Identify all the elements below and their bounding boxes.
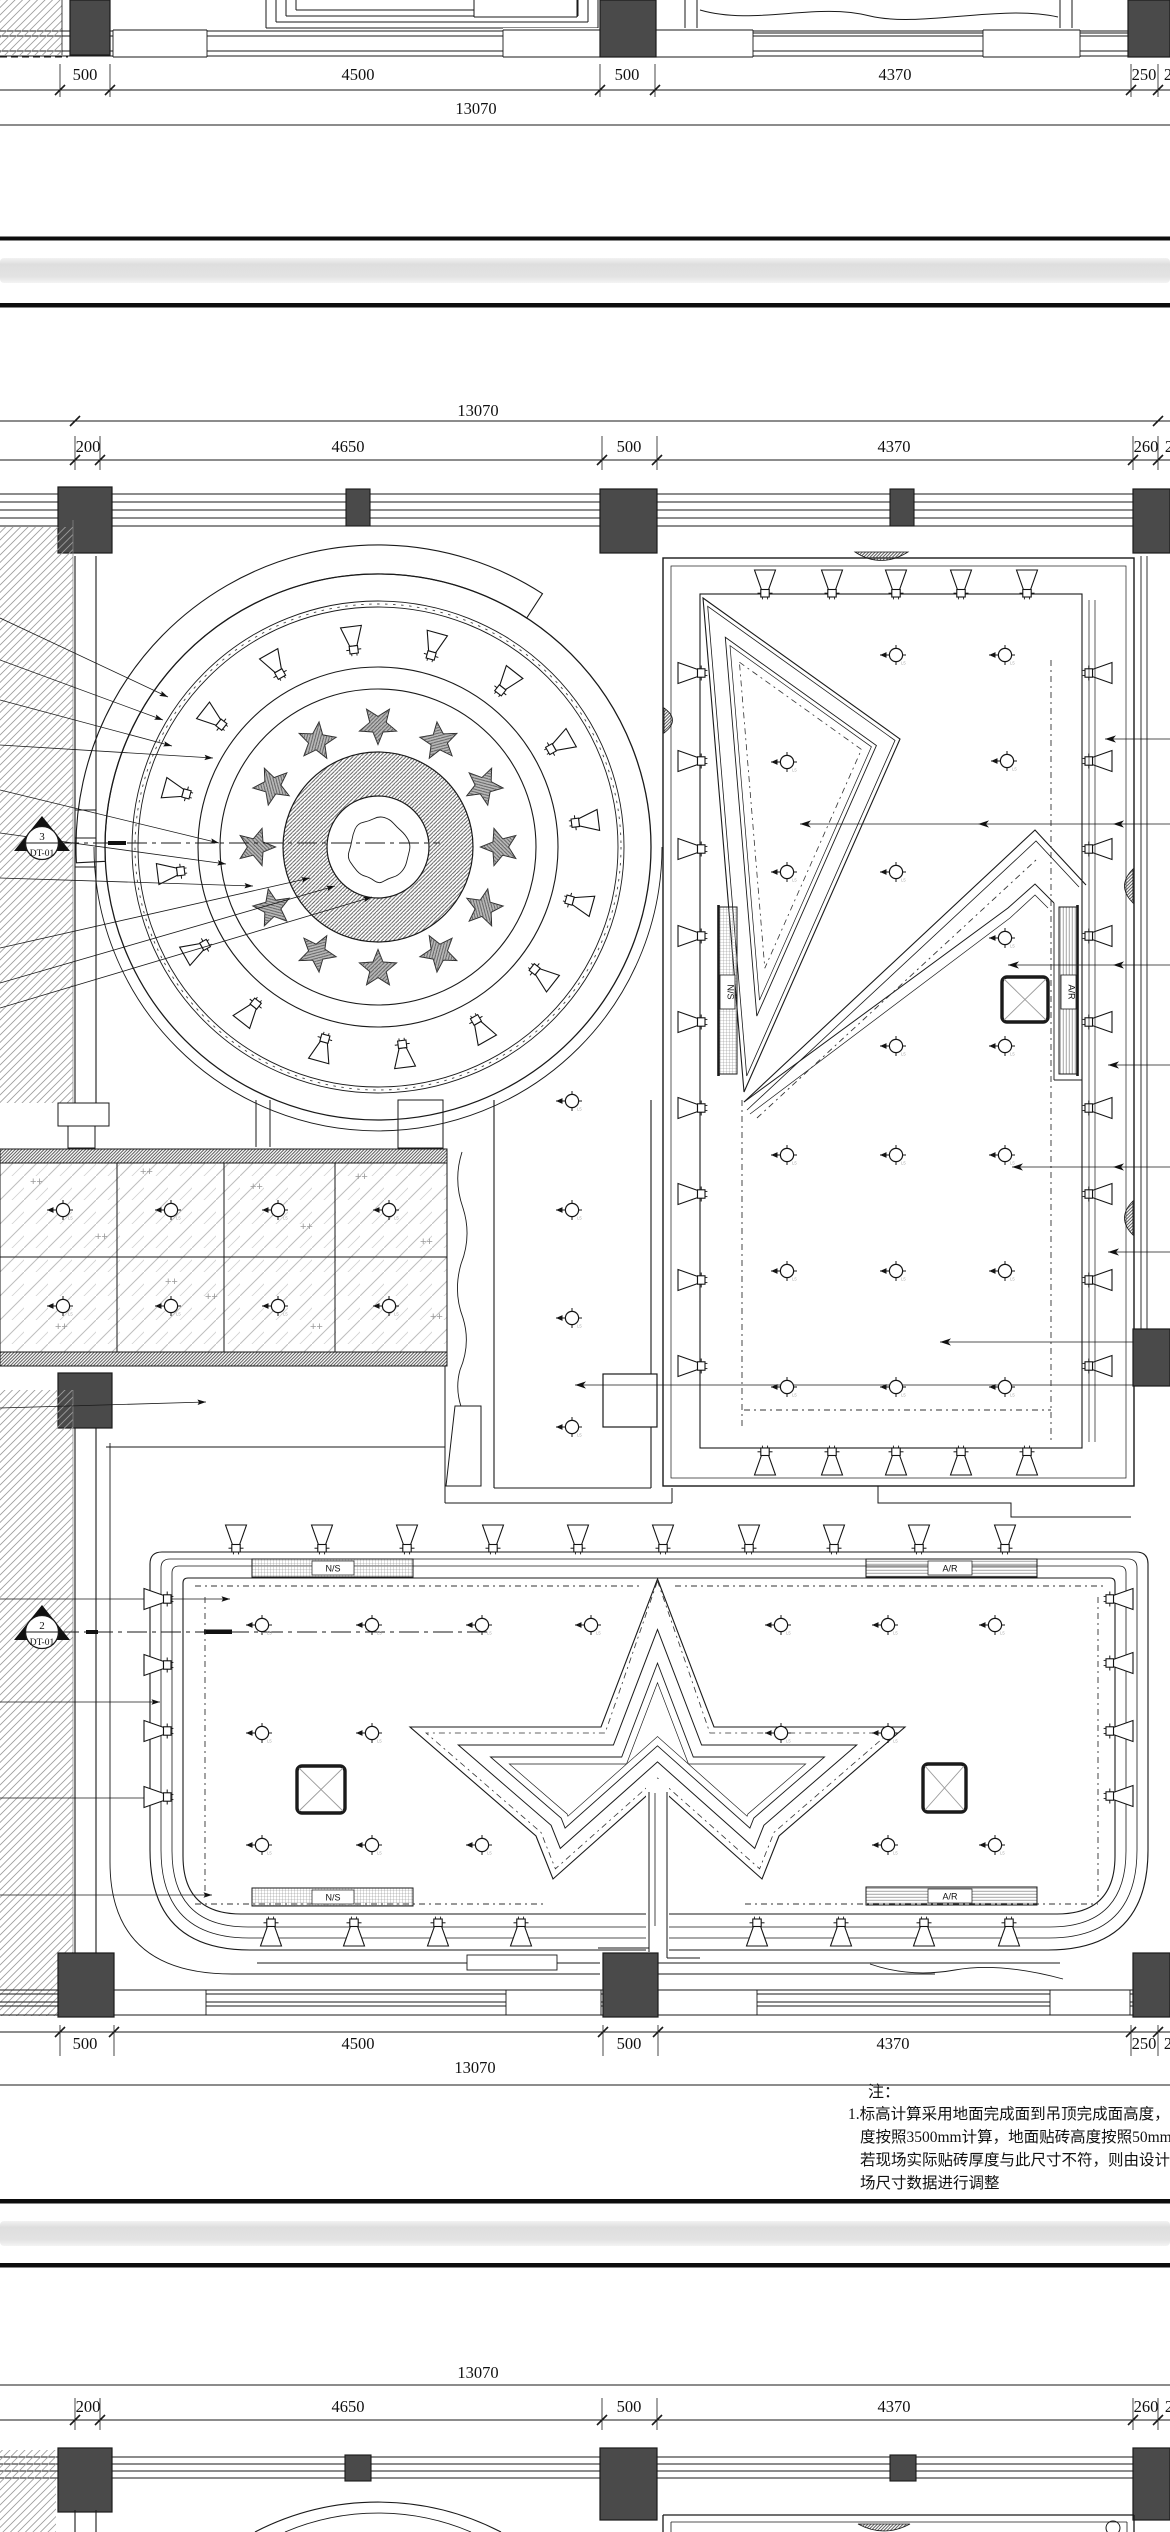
svg-text:250: 250 (1132, 2034, 1157, 2053)
svg-text:13070: 13070 (457, 401, 498, 420)
svg-text:++: ++ (205, 1291, 218, 1303)
svg-text:260: 260 (1134, 437, 1159, 456)
svg-text:若现场实际贴砖厚度与此尺寸不符，则由设计师: 若现场实际贴砖厚度与此尺寸不符，则由设计师 (860, 2151, 1170, 2169)
svg-text:4500: 4500 (342, 2034, 375, 2053)
svg-text:4500: 4500 (342, 65, 375, 84)
svg-text:++: ++ (310, 1321, 323, 1333)
svg-text:++: ++ (55, 1321, 68, 1333)
svg-text:4650: 4650 (332, 437, 365, 456)
svg-text:13070: 13070 (454, 2058, 495, 2077)
svg-text:DT-01: DT-01 (30, 849, 55, 859)
svg-text:2: 2 (39, 1620, 45, 1632)
svg-text:500: 500 (615, 65, 640, 84)
svg-text:A/R: A/R (942, 1564, 958, 1574)
svg-text:DT-01: DT-01 (30, 1638, 55, 1648)
svg-text:1.标高计算采用地面完成面到吊顶完成面高度，: 1.标高计算采用地面完成面到吊顶完成面高度， (848, 2104, 1170, 2123)
svg-text:500: 500 (73, 65, 98, 84)
svg-text:500: 500 (73, 2034, 98, 2053)
svg-text:++: ++ (95, 1231, 108, 1243)
svg-text:++: ++ (355, 1171, 368, 1183)
svg-text:++: ++ (430, 1311, 443, 1323)
svg-text:N/S: N/S (325, 1564, 340, 1574)
svg-text:3: 3 (39, 831, 45, 843)
svg-text:260: 260 (1134, 2397, 1159, 2416)
svg-text:2: 2 (1165, 437, 1170, 456)
svg-text:++: ++ (420, 1236, 433, 1248)
svg-text:++: ++ (250, 1181, 263, 1193)
svg-text:4370: 4370 (879, 65, 912, 84)
svg-text:200: 200 (76, 2397, 101, 2416)
svg-text:++: ++ (140, 1166, 153, 1178)
svg-text:2: 2 (1164, 65, 1170, 84)
svg-text:2: 2 (1164, 2034, 1170, 2053)
svg-text:4370: 4370 (878, 437, 911, 456)
svg-text:++: ++ (300, 1221, 313, 1233)
svg-text:A/R: A/R (1067, 984, 1077, 1000)
svg-text:A/R: A/R (942, 1892, 958, 1902)
svg-text:4370: 4370 (877, 2034, 910, 2053)
svg-text:250: 250 (1132, 65, 1157, 84)
svg-text:场尺寸数据进行调整: 场尺寸数据进行调整 (860, 2174, 1000, 2192)
svg-text:4650: 4650 (332, 2397, 365, 2416)
svg-text:4370: 4370 (878, 2397, 911, 2416)
svg-text:N/S: N/S (726, 984, 736, 999)
svg-text:2: 2 (1165, 2397, 1170, 2416)
svg-text:++: ++ (165, 1276, 178, 1288)
svg-text:注：: 注： (868, 2083, 900, 2101)
svg-text:500: 500 (617, 2397, 642, 2416)
svg-text:度按照3500mm计算，地面贴砖高度按照50mm厚度: 度按照3500mm计算，地面贴砖高度按照50mm厚度 (860, 2127, 1170, 2146)
svg-text:500: 500 (617, 437, 642, 456)
svg-text:13070: 13070 (457, 2363, 498, 2382)
svg-text:13070: 13070 (455, 99, 496, 118)
svg-text:200: 200 (76, 437, 101, 456)
svg-text:500: 500 (617, 2034, 642, 2053)
svg-text:++: ++ (30, 1176, 43, 1188)
svg-text:N/S: N/S (325, 1893, 340, 1903)
